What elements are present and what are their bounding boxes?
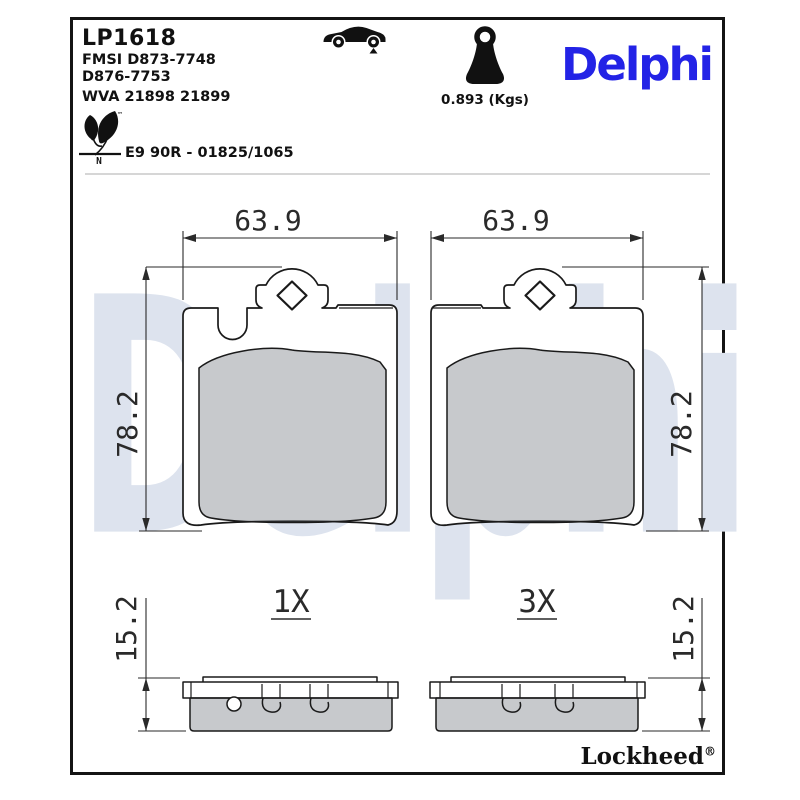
- arrowhead-up: [698, 267, 705, 280]
- right-pad-friction-material: [447, 348, 634, 522]
- width-value-right: 63.9: [482, 204, 549, 237]
- lockheed-wordmark: Lockheed: [580, 743, 704, 770]
- left-pad-side-view: [183, 677, 398, 731]
- right-pad-side-view: [430, 677, 645, 731]
- leaf-left: [85, 115, 99, 141]
- right-pad-front-view: [431, 269, 643, 525]
- arrowhead-right: [384, 234, 397, 242]
- fmsi-reference-line2: D876-7753: [82, 69, 171, 85]
- weight-value: 0.893 (Kgs): [436, 92, 534, 108]
- left-pad-friction-material: [199, 348, 386, 522]
- arrowhead-down: [698, 518, 705, 531]
- fmsi-reference-line1: FMSI D873-7748: [82, 52, 216, 68]
- rear-hub: [371, 40, 376, 45]
- thickness-value-left: 15.2: [110, 595, 143, 662]
- trademark-symbol: ™: [118, 111, 122, 119]
- header-divider: [85, 173, 710, 175]
- homologation-number: E9 90R - 01825/1065: [125, 145, 294, 161]
- technical-drawing: 63.9 63.9 78.2 78.2 1X 3X: [73, 180, 722, 772]
- arrowhead-left: [431, 234, 444, 242]
- arrowhead-down: [142, 518, 149, 531]
- right-pad-quantity: 3X: [518, 584, 556, 620]
- friction-edge: [436, 698, 638, 731]
- width-value-left: 63.9: [234, 204, 301, 237]
- eco-mark-letter: N: [96, 156, 102, 167]
- leaf-eco-icon: ™ N: [78, 110, 126, 168]
- backplate-edge: [183, 682, 398, 698]
- height-value-right: 78.2: [665, 390, 698, 457]
- dim-lines: [138, 598, 186, 731]
- dimension-thickness-left: 15.2: [110, 595, 186, 731]
- left-pad-front-view: [183, 269, 397, 525]
- arrowhead-up: [142, 678, 149, 691]
- front-hub: [336, 40, 341, 45]
- brand-logo-delphi: Delphi: [561, 38, 712, 91]
- weight-icon: [456, 26, 514, 90]
- arrowhead-right: [630, 234, 643, 242]
- thickness-value-right: 15.2: [667, 595, 700, 662]
- pin-hole: [227, 697, 241, 711]
- rear-axle-marker-icon: [370, 48, 378, 54]
- arrowhead-left: [183, 234, 196, 242]
- arrowhead-up: [142, 267, 149, 280]
- arrowhead-down: [698, 718, 705, 731]
- dimension-thickness-right: 15.2: [642, 595, 710, 731]
- backplate-edge: [430, 682, 645, 698]
- left-pad-quantity: 1X: [272, 584, 310, 620]
- car-icon: [321, 20, 388, 55]
- weight-handle: [477, 29, 493, 45]
- wva-reference: WVA 21898 21899: [82, 89, 230, 105]
- registered-symbol: ®: [704, 744, 716, 758]
- quantity-labels: 1X 3X: [271, 584, 557, 620]
- friction-edge: [190, 698, 392, 731]
- weight-body: [466, 43, 504, 84]
- arrowhead-down: [142, 718, 149, 731]
- footer-brand-lockheed: Lockheed®: [540, 743, 716, 770]
- arrowhead-up: [698, 678, 705, 691]
- height-value-left: 78.2: [111, 390, 144, 457]
- part-number: LP1618: [82, 26, 176, 51]
